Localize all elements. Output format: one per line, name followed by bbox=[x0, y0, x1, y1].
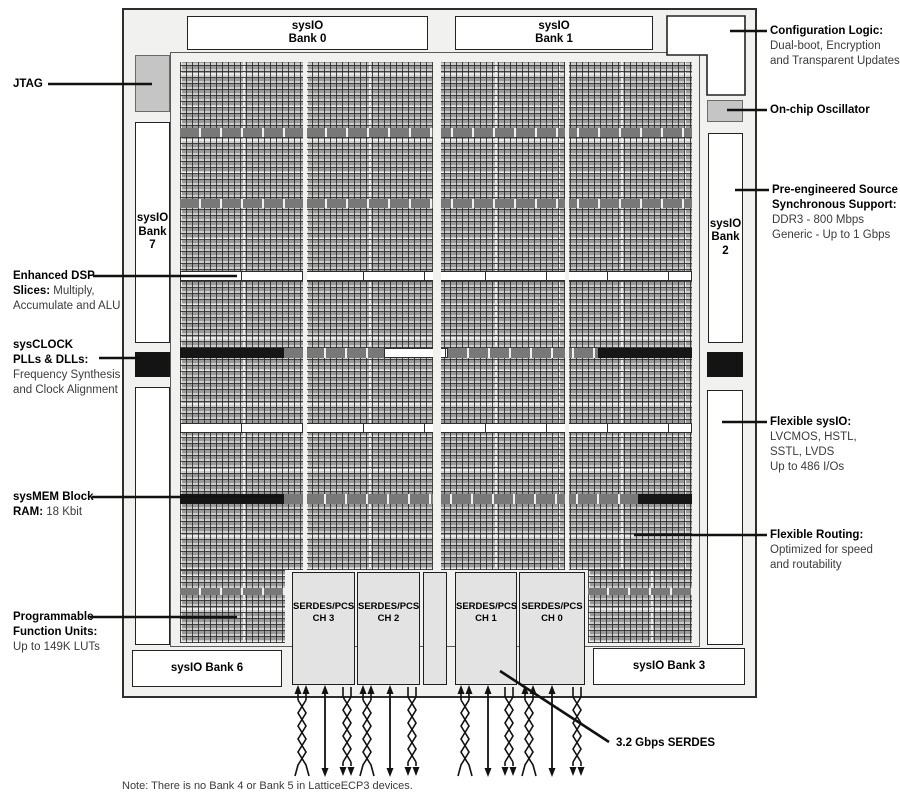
pll-block-right bbox=[707, 352, 743, 377]
pfu-callout: Programmable Function Units: Up to 149K … bbox=[13, 610, 100, 655]
dsp-bold2: Slices: bbox=[13, 285, 50, 297]
bank2-line1: sysIO bbox=[710, 218, 741, 232]
serdes-ch1-name: SERDES/PCS bbox=[456, 601, 516, 613]
serdes-io-arrows bbox=[360, 685, 420, 777]
serdes-ch0-name: SERDES/PCS bbox=[520, 601, 584, 613]
serdes-pcs-ch0-block: SERDES/PCSCH 0 bbox=[519, 572, 585, 685]
pfu-title2: Function Units: bbox=[13, 625, 100, 640]
serdes-ch0-num: CH 0 bbox=[520, 613, 584, 625]
clock-row-pll-right bbox=[598, 348, 692, 358]
bank1-line2: Bank 1 bbox=[535, 33, 573, 47]
serdes-io-arrows bbox=[458, 685, 517, 777]
sysmem-callout: sysMEM Block RAM: 18 Kbit bbox=[13, 490, 94, 520]
fabric-column-gap bbox=[303, 62, 307, 570]
serdes-pcs-ch3-block: SERDES/PCSCH 3 bbox=[292, 572, 355, 685]
serdes-io-arrows bbox=[295, 685, 355, 777]
jtag-block bbox=[135, 55, 170, 112]
clock-title2: PLLs & DLLs: bbox=[13, 353, 120, 368]
serdes-pcs-ch2-block: SERDES/PCSCH 2 bbox=[357, 572, 420, 685]
serdes-ch3-name: SERDES/PCS bbox=[293, 601, 354, 613]
mem-title: sysMEM Block bbox=[13, 490, 94, 505]
ebr-ram-row-right bbox=[638, 494, 692, 504]
jtag-callout: JTAG bbox=[13, 77, 43, 92]
io-row bbox=[588, 588, 692, 595]
pfu-desc: Up to 149K LUTs bbox=[13, 640, 100, 655]
mem-rest2: 18 Kbit bbox=[43, 506, 82, 518]
clock-title1: sysCLOCK bbox=[13, 338, 120, 353]
flexible-sysio-title: Flexible sysIO: bbox=[770, 415, 857, 430]
dsp-line3: Accumulate and ALU bbox=[13, 299, 120, 314]
bank6-label: sysIO Bank 6 bbox=[171, 662, 243, 676]
io-row bbox=[180, 588, 285, 595]
sysclock-callout: sysCLOCK PLLs & DLLs: Frequency Synthesi… bbox=[13, 338, 120, 398]
bank3-label: sysIO Bank 3 bbox=[633, 660, 705, 674]
serdes-ch1-num: CH 1 bbox=[456, 613, 516, 625]
oscillator-callout: On-chip Oscillator bbox=[770, 103, 870, 118]
source-sync-callout: Pre-engineered Source Synchronous Suppor… bbox=[772, 183, 898, 243]
oscillator-block bbox=[707, 100, 743, 122]
config-logic-callout: Configuration Logic: Dual-boot, Encrypti… bbox=[770, 24, 900, 69]
bank0-line1: sysIO bbox=[289, 20, 327, 34]
bank7-line1: sysIO bbox=[137, 212, 168, 226]
config-desc1: Dual-boot, Encryption bbox=[770, 39, 900, 54]
fabric-column-gap bbox=[565, 62, 569, 570]
sysio-bank3-box: sysIO Bank 3 bbox=[593, 648, 745, 685]
mem-bold2: RAM: bbox=[13, 506, 43, 518]
clock-row-gray bbox=[284, 348, 384, 358]
flexible-routing-callout: Flexible Routing: Optimized for speed an… bbox=[770, 528, 873, 573]
bank2-line3: 2 bbox=[710, 245, 741, 259]
footnote: Note: There is no Bank 4 or Bank 5 in La… bbox=[122, 780, 413, 792]
source-sync-desc2: Generic - Up to 1 Gbps bbox=[772, 228, 898, 243]
serdes-speed-callout: 3.2 Gbps SERDES bbox=[616, 736, 715, 751]
bank2-line2: Bank bbox=[710, 231, 741, 245]
io-bank-right-lower bbox=[707, 390, 743, 645]
clock-desc1: Frequency Synthesis bbox=[13, 368, 120, 383]
sysio-bank1-box: sysIOBank 1 bbox=[455, 16, 653, 50]
pll-block-left bbox=[135, 352, 170, 377]
serdes-pcs-ch1-block: SERDES/PCSCH 1 bbox=[455, 572, 517, 685]
configuration-logic-block bbox=[666, 15, 747, 97]
flexible-sysio-desc3: Up to 486 I/Os bbox=[770, 460, 857, 475]
serdes-speed-title: 3.2 Gbps SERDES bbox=[616, 736, 715, 751]
flexible-routing-desc2: and routability bbox=[770, 558, 873, 573]
source-sync-desc1: DDR3 - 800 Mbps bbox=[772, 213, 898, 228]
flexible-sysio-callout: Flexible sysIO: LVCMOS, HSTL, SSTL, LVDS… bbox=[770, 415, 857, 475]
dsp-callout: Enhanced DSP Slices: Multiply, Accumulat… bbox=[13, 269, 120, 314]
serdes-spare-strip bbox=[423, 572, 447, 685]
logic-fabric-right-flank bbox=[588, 570, 692, 643]
serdes-ch2-num: CH 2 bbox=[358, 613, 419, 625]
ebr-ram-row-left bbox=[180, 494, 284, 504]
serdes-io-arrows bbox=[522, 685, 585, 777]
serdes-ch2-name: SERDES/PCS bbox=[358, 601, 419, 613]
source-sync-title1: Pre-engineered Source bbox=[772, 183, 898, 198]
lattice-ecp3-block-diagram: sysIOBank 0 sysIOBank 1 sysIOBank7 sysIO… bbox=[0, 0, 900, 800]
sysio-bank0-box: sysIOBank 0 bbox=[187, 16, 428, 50]
flexible-sysio-desc1: LVCMOS, HSTL, bbox=[770, 430, 857, 445]
flexible-routing-desc1: Optimized for speed bbox=[770, 543, 873, 558]
sysio-bank6-box: sysIO Bank 6 bbox=[132, 650, 282, 687]
config-desc2: and Transparent Updates bbox=[770, 54, 900, 69]
bank7-line2: Bank bbox=[137, 226, 168, 240]
logic-fabric-left-flank bbox=[180, 570, 285, 643]
ebr-ram-row-gray bbox=[284, 494, 638, 504]
serdes-ch3-num: CH 3 bbox=[293, 613, 354, 625]
pfu-title1: Programmable bbox=[13, 610, 100, 625]
oscillator-title: On-chip Oscillator bbox=[770, 103, 870, 118]
clock-row-pll-left bbox=[180, 348, 284, 358]
dsp-title: Enhanced DSP bbox=[13, 269, 120, 284]
dsp-rest2: Multiply, bbox=[50, 285, 95, 297]
clock-desc2: and Clock Alignment bbox=[13, 383, 120, 398]
flexible-sysio-desc2: SSTL, LVDS bbox=[770, 445, 857, 460]
sysio-bank2-box: sysIOBank2 bbox=[708, 133, 743, 343]
bank1-line1: sysIO bbox=[535, 20, 573, 34]
jtag-title: JTAG bbox=[13, 77, 43, 92]
flexible-routing-title: Flexible Routing: bbox=[770, 528, 873, 543]
bank0-line2: Bank 0 bbox=[289, 33, 327, 47]
io-bank-left-lower bbox=[135, 387, 170, 645]
bank7-line3: 7 bbox=[137, 239, 168, 253]
fabric-column-gap bbox=[433, 62, 441, 570]
clock-row-gray bbox=[448, 348, 598, 358]
sysio-bank7-box: sysIOBank7 bbox=[135, 122, 170, 343]
config-title: Configuration Logic: bbox=[770, 24, 900, 39]
source-sync-title2: Synchronous Support: bbox=[772, 198, 898, 213]
